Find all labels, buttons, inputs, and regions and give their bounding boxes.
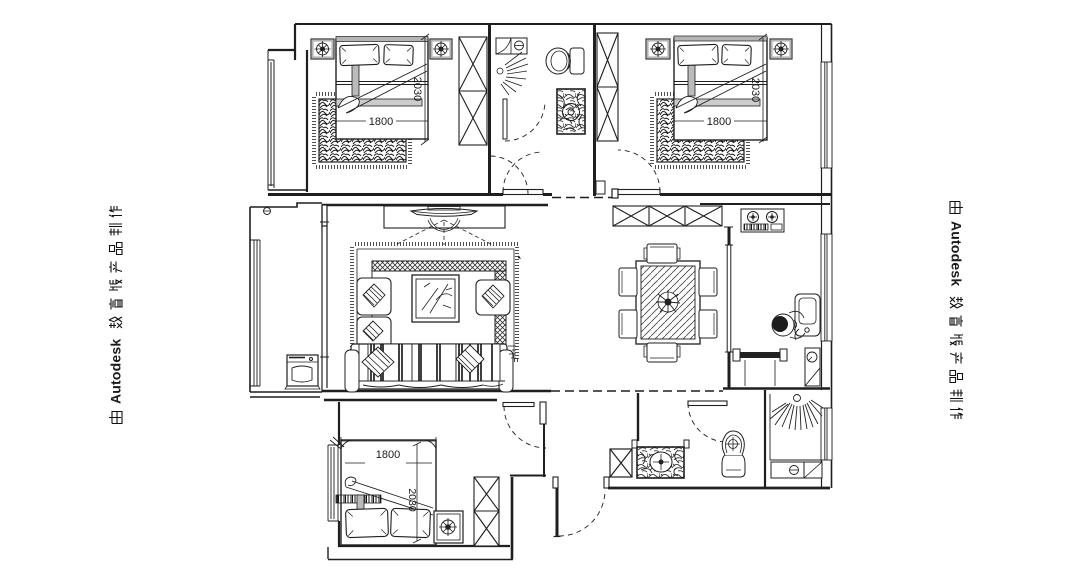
svg-text:2030: 2030 bbox=[749, 78, 761, 102]
svg-text:1800: 1800 bbox=[707, 116, 731, 128]
svg-text:1800: 1800 bbox=[376, 449, 400, 461]
svg-text:2030: 2030 bbox=[411, 77, 423, 101]
svg-text:2030: 2030 bbox=[406, 488, 418, 512]
svg-text:1800: 1800 bbox=[369, 116, 393, 128]
